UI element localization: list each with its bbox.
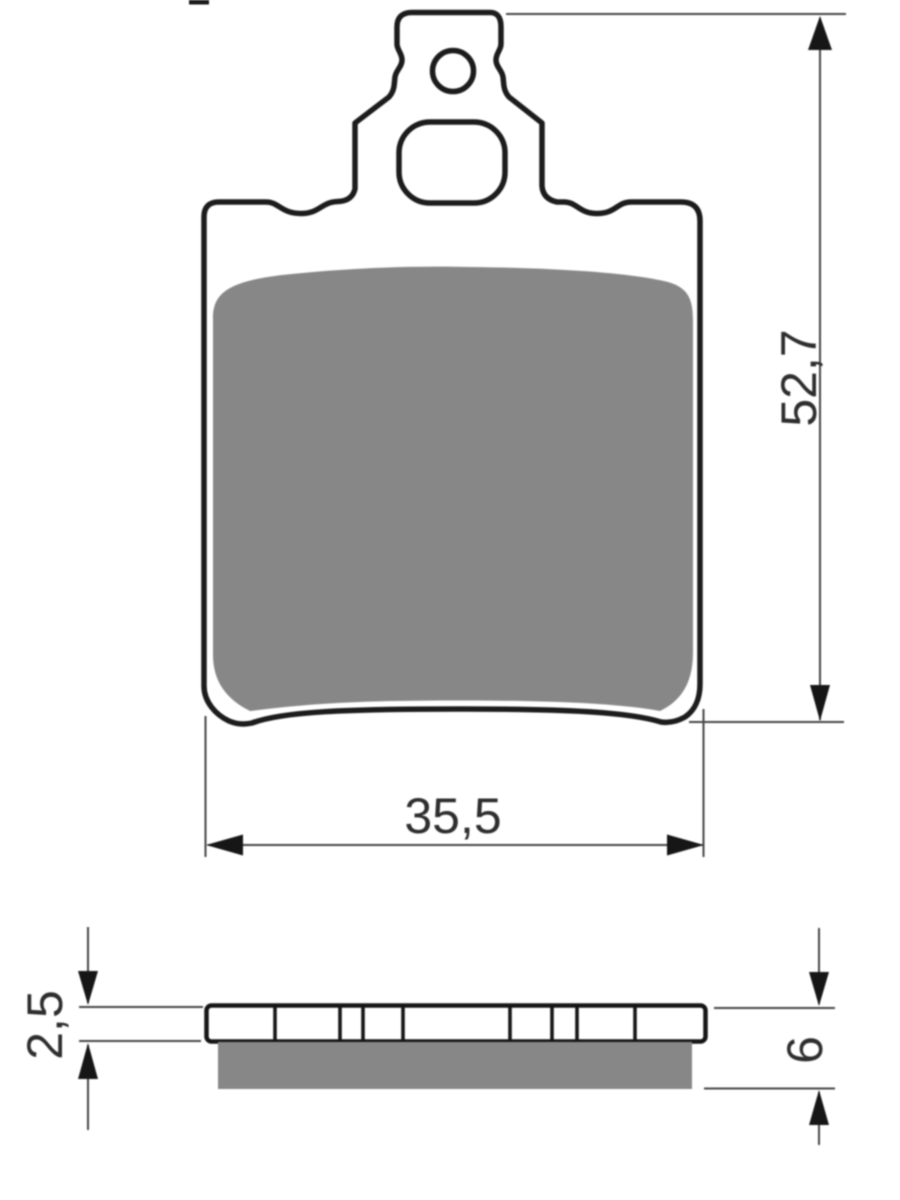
svg-text:2,5: 2,5 <box>17 990 73 1060</box>
svg-text:6: 6 <box>777 1036 833 1064</box>
svg-text:35,5: 35,5 <box>404 788 501 844</box>
svg-text:52,7: 52,7 <box>771 329 827 426</box>
